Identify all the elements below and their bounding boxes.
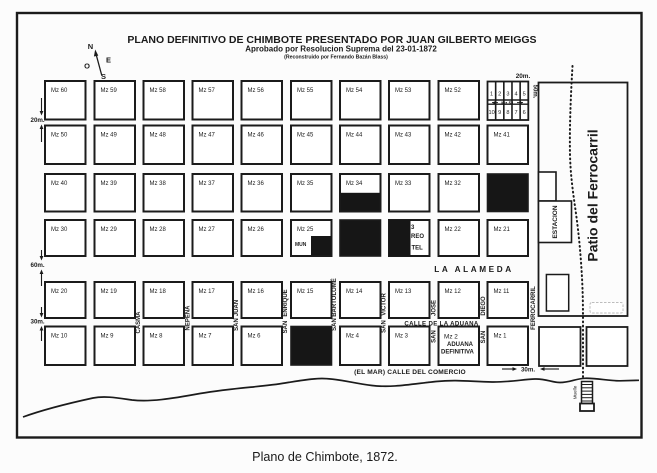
svg-text:NEPEÑA: NEPEÑA <box>185 305 192 331</box>
svg-text:Mz 45: Mz 45 <box>297 133 314 139</box>
svg-text:CASMA: CASMA <box>136 311 142 334</box>
svg-text:20m.: 20m. <box>31 117 45 124</box>
svg-text:ADUANA: ADUANA <box>447 342 474 348</box>
svg-text:Mz 11: Mz 11 <box>494 289 511 295</box>
svg-text:6: 6 <box>523 110 526 116</box>
svg-text:Mz 32: Mz 32 <box>445 181 462 187</box>
svg-text:Mz 1: Mz 1 <box>494 334 508 340</box>
svg-text:10: 10 <box>488 110 494 116</box>
svg-text:Mz 19: Mz 19 <box>101 289 118 295</box>
svg-text:Mz 29: Mz 29 <box>101 227 118 233</box>
svg-text:Mz 53: Mz 53 <box>395 88 412 94</box>
svg-text:Mz 37: Mz 37 <box>199 181 216 187</box>
svg-text:Mz 30: Mz 30 <box>51 227 68 233</box>
svg-text:60m.: 60m. <box>31 262 45 269</box>
svg-text:CALLE DE LA ADUANA: CALLE DE LA ADUANA <box>404 321 478 328</box>
svg-text:REO: REO <box>411 234 424 240</box>
svg-text:Mz 50: Mz 50 <box>51 133 68 139</box>
svg-text:30m.: 30m. <box>31 319 45 326</box>
svg-text:BARTOLOMÉ: BARTOLOMÉ <box>330 278 338 317</box>
svg-text:Mz 6: Mz 6 <box>248 334 262 340</box>
svg-text:Mz 56: Mz 56 <box>248 88 265 94</box>
svg-text:Mz 28: Mz 28 <box>150 227 167 233</box>
svg-text:Mz 51: Mz 51 <box>501 100 514 105</box>
svg-text:Mz 12: Mz 12 <box>445 289 462 295</box>
svg-text:SAN: SAN <box>283 321 289 334</box>
svg-text:Mz 4: Mz 4 <box>346 334 360 340</box>
svg-text:Mz 38: Mz 38 <box>150 181 167 187</box>
svg-text:Mz 15: Mz 15 <box>297 289 314 295</box>
svg-text:1: 1 <box>490 92 493 98</box>
svg-text:Mz 57: Mz 57 <box>199 88 216 94</box>
svg-text:Mz 22: Mz 22 <box>445 227 462 233</box>
svg-text:E: E <box>106 56 111 65</box>
svg-text:MUN: MUN <box>295 242 307 248</box>
svg-text:Mz 2: Mz 2 <box>444 334 458 341</box>
svg-text:Mz 21: Mz 21 <box>494 227 511 233</box>
svg-text:Mz 3: Mz 3 <box>395 334 409 340</box>
svg-text:Plano de Chimbote, 1872.: Plano de Chimbote, 1872. <box>252 450 398 464</box>
svg-text:8: 8 <box>506 110 509 116</box>
svg-text:Mz 9: Mz 9 <box>101 334 115 340</box>
svg-text:JUAN: JUAN <box>234 300 240 316</box>
svg-text:Mz 13: Mz 13 <box>395 289 412 295</box>
svg-text:Mz 40: Mz 40 <box>51 181 68 187</box>
svg-text:SAN: SAN <box>481 331 487 344</box>
svg-text:50m.: 50m. <box>532 85 538 99</box>
svg-text:JOSÉ: JOSÉ <box>430 300 438 316</box>
svg-text:Mz 26: Mz 26 <box>248 227 265 233</box>
svg-text:Mz 17: Mz 17 <box>199 289 216 295</box>
svg-text:Mz 58: Mz 58 <box>150 88 167 94</box>
svg-text:Mz 43: Mz 43 <box>395 133 412 139</box>
svg-text:Mz 46: Mz 46 <box>248 133 265 139</box>
svg-text:Mz 42: Mz 42 <box>445 133 462 139</box>
svg-text:7: 7 <box>514 110 517 116</box>
svg-text:Mz 8: Mz 8 <box>150 334 164 340</box>
svg-text:5: 5 <box>523 92 526 98</box>
svg-text:SAN: SAN <box>382 320 388 333</box>
svg-text:SAN: SAN <box>332 318 338 331</box>
svg-text:N: N <box>88 42 93 51</box>
svg-text:30m.: 30m. <box>521 367 535 374</box>
svg-text:Mz 49: Mz 49 <box>101 133 118 139</box>
svg-text:Mz 34: Mz 34 <box>346 181 363 187</box>
svg-text:Mz 7: Mz 7 <box>199 334 213 340</box>
svg-text:Mz 33: Mz 33 <box>395 181 412 187</box>
svg-text:Mz 41: Mz 41 <box>494 133 511 139</box>
svg-text:DIEGO: DIEGO <box>481 296 487 316</box>
svg-text:Mz 48: Mz 48 <box>150 133 167 139</box>
svg-text:9: 9 <box>498 110 501 116</box>
svg-text:DEFINITIVA: DEFINITIVA <box>441 350 475 356</box>
svg-text:Mz 35: Mz 35 <box>297 181 314 187</box>
svg-text:Mz 18: Mz 18 <box>150 289 167 295</box>
svg-text:Mz 54: Mz 54 <box>346 88 363 94</box>
svg-text:2: 2 <box>498 92 501 98</box>
svg-text:Mz 44: Mz 44 <box>346 133 363 139</box>
svg-text:Mz 25: Mz 25 <box>297 227 314 233</box>
svg-text:Patio del Ferrocarril: Patio del Ferrocarril <box>585 129 601 261</box>
svg-text:SAN: SAN <box>432 330 438 343</box>
svg-text:20m.: 20m. <box>516 73 531 80</box>
svg-text:Mz 16: Mz 16 <box>248 289 265 295</box>
svg-text:Mz 60: Mz 60 <box>51 88 68 94</box>
svg-text:Mz 39: Mz 39 <box>101 181 118 187</box>
svg-text:Mz 52: Mz 52 <box>445 88 462 94</box>
svg-text:Aprobado por Resolucion Suprem: Aprobado por Resolucion Suprema del 23-0… <box>245 45 437 54</box>
svg-text:Mz 20: Mz 20 <box>51 289 68 295</box>
svg-text:3: 3 <box>506 92 509 98</box>
svg-text:Mz 47: Mz 47 <box>199 133 216 139</box>
svg-text:(Reconstruido por Fernando Baz: (Reconstruido por Fernando Bazán Blass) <box>284 55 388 61</box>
svg-text:Mz 55: Mz 55 <box>297 88 314 94</box>
svg-text:LA ALAMEDA: LA ALAMEDA <box>434 265 514 274</box>
svg-text:TEL: TEL <box>412 246 424 252</box>
svg-text:Mz 14: Mz 14 <box>346 289 363 295</box>
svg-text:Mz 27: Mz 27 <box>199 227 216 233</box>
svg-text:VICTOR: VICTOR <box>382 293 388 316</box>
svg-text:O: O <box>84 62 90 71</box>
svg-text:SAN: SAN <box>234 318 240 331</box>
svg-text:Muelle: Muelle <box>573 385 578 399</box>
svg-text:(EL MAR) CALLE DEL COMERCIO: (EL MAR) CALLE DEL COMERCIO <box>354 369 466 376</box>
svg-text:Mz 10: Mz 10 <box>51 334 68 340</box>
svg-text:ENRIQUE: ENRIQUE <box>283 289 289 316</box>
svg-text:Mz 59: Mz 59 <box>101 88 118 94</box>
svg-text:ESTACION: ESTACION <box>552 205 559 238</box>
svg-text:4: 4 <box>514 92 517 98</box>
svg-text:FERROCARRIL: FERROCARRIL <box>531 286 537 330</box>
svg-text:Mz 36: Mz 36 <box>248 181 265 187</box>
